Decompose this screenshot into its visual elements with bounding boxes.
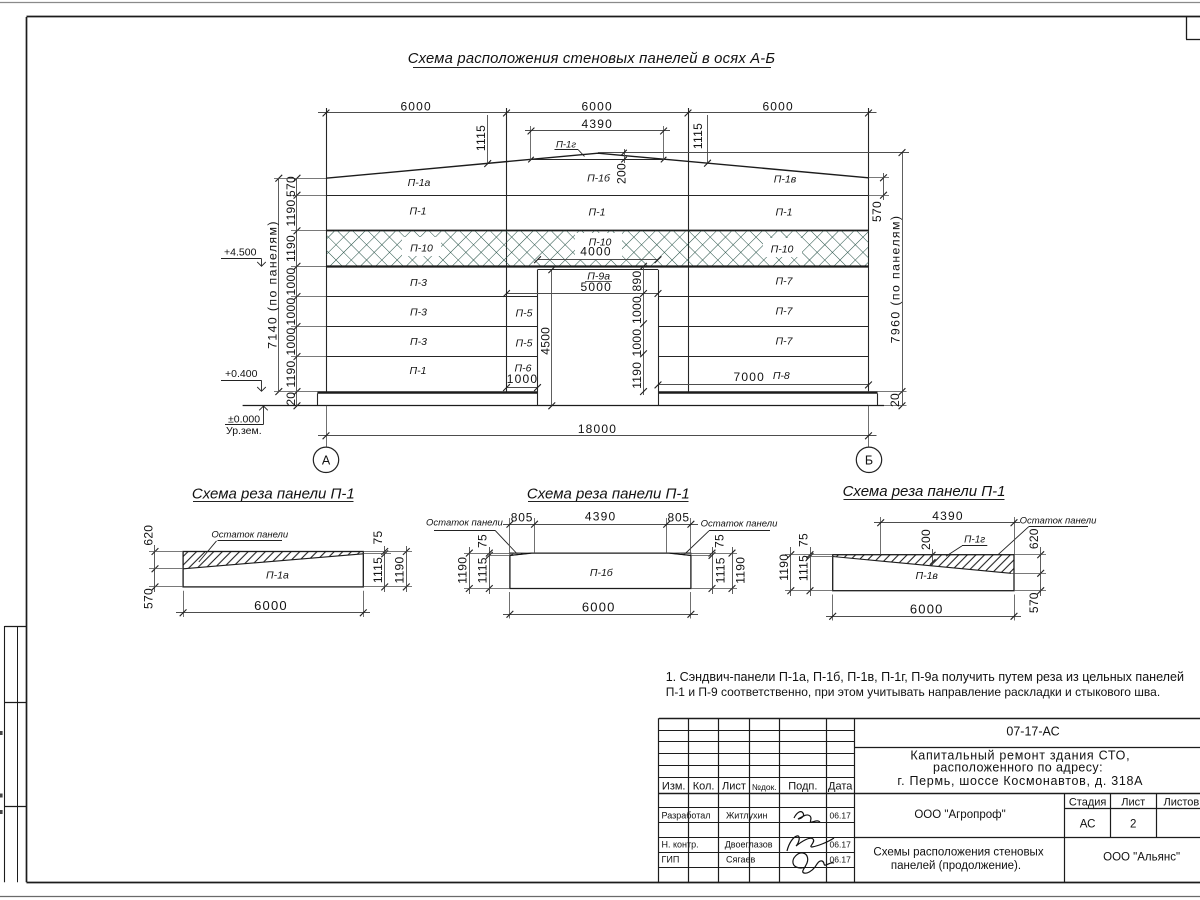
svg-text:Схемы расположения стеновых: Схемы расположения стеновых — [873, 846, 1043, 858]
svg-text:1115: 1115 — [474, 125, 488, 151]
svg-text:П-1б: П-1б — [587, 173, 611, 185]
svg-text:200: 200 — [919, 529, 933, 550]
svg-text:г. Пермь, шоссе Космонавтов, д: г. Пермь, шоссе Космонавтов, д. 318А — [897, 774, 1143, 788]
svg-text:А: А — [322, 453, 331, 467]
svg-text:1000: 1000 — [630, 296, 644, 324]
svg-text:Разработал: Разработал — [662, 811, 711, 821]
svg-text:АС: АС — [1080, 818, 1096, 830]
svg-text:4000: 4000 — [580, 245, 612, 259]
svg-text:Схема реза панели П-1: Схема реза панели П-1 — [192, 485, 355, 502]
svg-text:4390: 4390 — [585, 510, 617, 524]
svg-text:07-17-АС: 07-17-АС — [1006, 725, 1059, 739]
svg-text:1190: 1190 — [393, 556, 407, 583]
svg-text:1000: 1000 — [284, 268, 298, 296]
svg-text:П-1: П-1 — [776, 207, 793, 219]
svg-text:7140 (по панелям): 7140 (по панелям) — [266, 220, 280, 349]
svg-text:20: 20 — [888, 393, 902, 407]
svg-text:Остаток панели: Остаток панели — [211, 530, 289, 541]
svg-text:06.17: 06.17 — [830, 811, 852, 821]
svg-text:75: 75 — [371, 531, 385, 545]
svg-text:4390: 4390 — [582, 117, 614, 131]
svg-text:570: 570 — [870, 201, 884, 222]
svg-text:620: 620 — [142, 525, 156, 546]
svg-text:7000: 7000 — [734, 370, 766, 384]
svg-text:Изм.: Изм. — [662, 780, 686, 792]
svg-text:570: 570 — [1027, 592, 1041, 613]
svg-text:П-7: П-7 — [776, 335, 794, 347]
svg-text:П-7: П-7 — [776, 305, 794, 317]
svg-text:Двоеглазов: Двоеглазов — [725, 840, 773, 850]
svg-text:75: 75 — [712, 534, 726, 548]
svg-text:П-1а: П-1а — [408, 177, 431, 189]
svg-text:№док.: №док. — [752, 782, 777, 792]
svg-text:Остаток панели: Остаток панели — [1020, 515, 1098, 526]
svg-text:1190: 1190 — [284, 235, 298, 262]
svg-text:06.17: 06.17 — [830, 840, 852, 850]
svg-text:1000: 1000 — [284, 328, 298, 356]
svg-text:П-1: П-1 — [410, 206, 427, 218]
svg-text:6000: 6000 — [400, 99, 432, 113]
svg-text:20: 20 — [284, 392, 298, 406]
svg-text:6000: 6000 — [910, 601, 944, 616]
svg-text:Ур.зем.: Ур.зем. — [226, 425, 262, 437]
svg-text:1115: 1115 — [476, 557, 490, 583]
svg-text:П-10: П-10 — [771, 243, 794, 255]
svg-text:890: 890 — [630, 271, 644, 292]
svg-text:панелей (продолжение).: панелей (продолжение). — [891, 860, 1021, 872]
svg-text:Дата: Дата — [828, 780, 853, 792]
svg-text:П-3: П-3 — [410, 336, 427, 348]
svg-text:1115: 1115 — [371, 557, 385, 583]
svg-text:1. Сэндвич-панели П-1а, П-1б,: 1. Сэндвич-панели П-1а, П-1б, П-1в, П-1г… — [666, 670, 1184, 684]
svg-text:1000: 1000 — [630, 329, 644, 357]
svg-text:П-1г: П-1г — [964, 535, 985, 546]
svg-text:620: 620 — [1027, 528, 1041, 549]
svg-text:1115: 1115 — [796, 555, 810, 581]
svg-text:4500: 4500 — [538, 327, 552, 355]
svg-text:Б: Б — [865, 453, 873, 467]
svg-text:расположенного по адресу:: расположенного по адресу: — [933, 761, 1103, 775]
svg-text:1190: 1190 — [284, 199, 298, 226]
svg-text:Схема реза панели П-1: Схема реза панели П-1 — [843, 483, 1006, 500]
svg-text:Схема расположения стеновых па: Схема расположения стеновых панелей в ос… — [408, 51, 776, 67]
svg-text:Лист: Лист — [722, 780, 746, 792]
svg-text:1190: 1190 — [284, 360, 298, 387]
svg-text:П-8: П-8 — [773, 370, 790, 382]
svg-text:570: 570 — [284, 176, 298, 197]
svg-text:1000: 1000 — [284, 298, 298, 326]
svg-text:5000: 5000 — [581, 280, 613, 294]
svg-text:П-1б: П-1б — [590, 567, 614, 579]
svg-text:1190: 1190 — [733, 557, 747, 584]
svg-text:П-6: П-6 — [515, 362, 532, 374]
svg-text:2: 2 — [1130, 818, 1136, 830]
svg-text:П-5: П-5 — [516, 308, 533, 320]
svg-text:6000: 6000 — [582, 599, 616, 614]
svg-text:П-10: П-10 — [410, 242, 433, 254]
svg-text:6000: 6000 — [581, 99, 613, 113]
svg-text:1190: 1190 — [456, 557, 470, 584]
svg-text:П-1: П-1 — [589, 207, 606, 219]
svg-text:Н. контр.: Н. контр. — [662, 840, 699, 850]
svg-text:+0.400: +0.400 — [225, 368, 258, 380]
svg-text:1190: 1190 — [777, 554, 791, 581]
svg-text:200: 200 — [614, 163, 628, 184]
svg-text:П-1в: П-1в — [774, 174, 797, 186]
svg-text:+4.500: +4.500 — [224, 246, 257, 258]
svg-text:Остаток панели: Остаток панели — [426, 517, 504, 528]
svg-text:7960 (по панелям): 7960 (по панелям) — [889, 215, 903, 344]
svg-text:Сягаев: Сягаев — [726, 855, 755, 865]
svg-text:4390: 4390 — [932, 509, 964, 523]
svg-text:805: 805 — [511, 510, 533, 524]
svg-text:75: 75 — [796, 533, 810, 547]
svg-text:П-1в: П-1в — [915, 570, 938, 582]
svg-text:П-1г: П-1г — [556, 139, 576, 150]
svg-text:П-3: П-3 — [410, 307, 427, 319]
svg-text:Подп.: Подп. — [788, 780, 817, 792]
svg-text:Стадия: Стадия — [1069, 796, 1107, 808]
svg-text:ООО "Альянс": ООО "Альянс" — [1103, 851, 1180, 863]
svg-text:П-7: П-7 — [776, 275, 794, 287]
svg-text:75: 75 — [476, 534, 490, 548]
svg-text:Кол.: Кол. — [693, 780, 715, 792]
svg-text:Житлухин: Житлухин — [726, 811, 768, 821]
svg-text:П-3: П-3 — [410, 277, 427, 289]
svg-text:П-1 и П-9 соответственно, при: П-1 и П-9 соответственно, при этом учиты… — [666, 685, 1160, 699]
svg-text:Лист: Лист — [1121, 796, 1145, 808]
svg-text:6000: 6000 — [762, 99, 794, 113]
svg-text:ООО "Агропроф": ООО "Агропроф" — [914, 809, 1005, 821]
svg-text:1115: 1115 — [713, 557, 727, 583]
svg-text:6000: 6000 — [254, 598, 288, 613]
svg-text:П-1: П-1 — [410, 365, 427, 377]
svg-text:1115: 1115 — [691, 123, 705, 149]
svg-text:805: 805 — [667, 510, 689, 524]
svg-text:570: 570 — [142, 588, 156, 609]
svg-text:Остаток панели: Остаток панели — [701, 518, 779, 529]
svg-text:±0.000: ±0.000 — [228, 414, 260, 426]
svg-text:1190: 1190 — [630, 362, 644, 389]
svg-text:18000: 18000 — [578, 422, 617, 436]
svg-text:ГИП: ГИП — [662, 855, 680, 865]
svg-text:Листов: Листов — [1164, 796, 1200, 808]
svg-text:П-5: П-5 — [516, 338, 533, 350]
svg-text:П-1а: П-1а — [266, 569, 289, 581]
svg-text:Схема реза панели П-1: Схема реза панели П-1 — [527, 485, 690, 502]
